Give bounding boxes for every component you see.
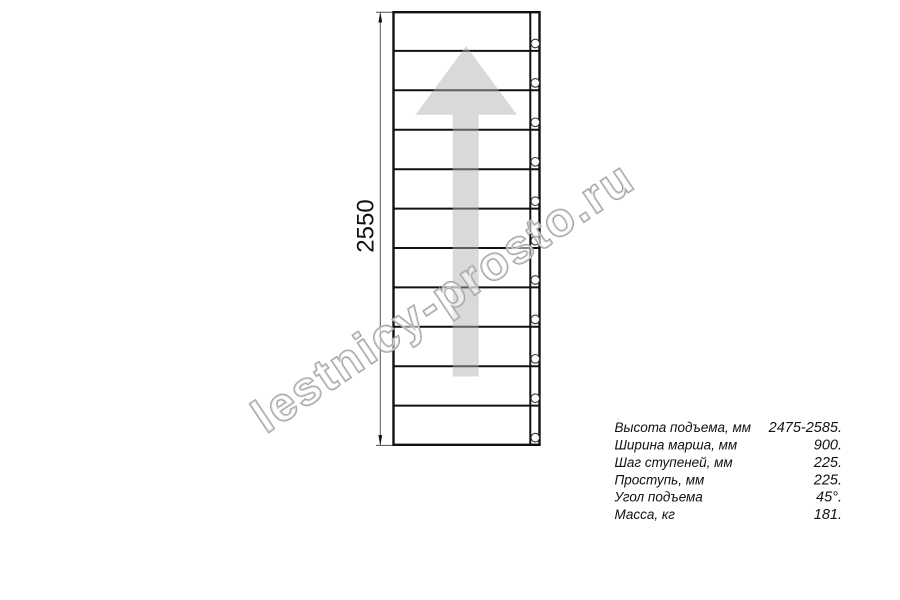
- svg-text:225.: 225.: [813, 455, 842, 471]
- svg-text:2475-2585.: 2475-2585.: [768, 420, 842, 436]
- svg-text:Масса, кг: Масса, кг: [615, 507, 676, 522]
- svg-text:Проступь, мм: Проступь, мм: [615, 472, 705, 487]
- svg-text:Ширина марша, мм: Ширина марша, мм: [615, 437, 738, 452]
- svg-text:2550: 2550: [353, 199, 380, 252]
- svg-text:225.: 225.: [813, 472, 842, 488]
- svg-text:Высота подъема, мм: Высота подъема, мм: [615, 420, 751, 435]
- svg-text:45°.: 45°.: [816, 490, 842, 506]
- svg-text:Угол подъема: Угол подъема: [614, 490, 704, 505]
- svg-text:900.: 900.: [814, 437, 842, 453]
- svg-text:Шаг ступеней, мм: Шаг ступеней, мм: [615, 455, 733, 470]
- svg-text:181.: 181.: [814, 507, 842, 523]
